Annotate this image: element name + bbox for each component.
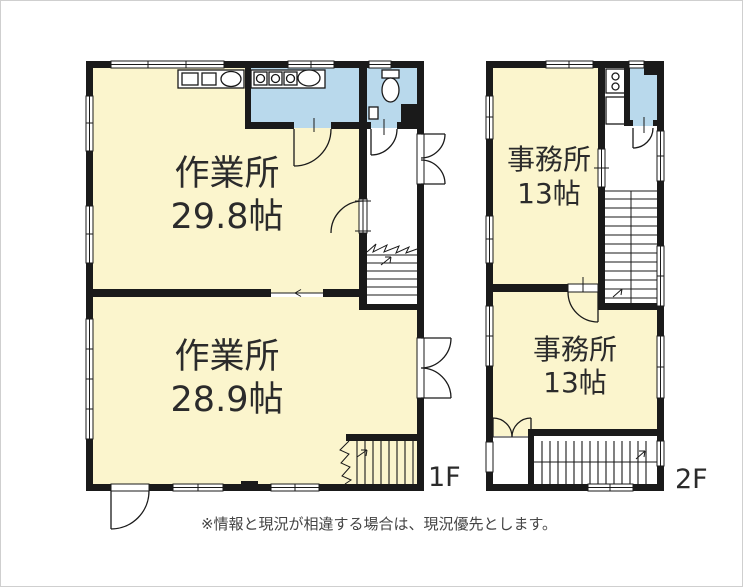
floor-label-2f: 2F — [675, 464, 708, 495]
room-label-name: 事務所 — [507, 143, 591, 176]
window — [288, 61, 334, 68]
kitchenette-2f — [606, 68, 630, 126]
window — [173, 484, 223, 491]
disclaimer-note: ※情報と現況が相違する場合は、現況優先とします。 — [201, 515, 557, 533]
window — [657, 336, 664, 398]
window — [86, 319, 93, 379]
window — [657, 131, 664, 181]
floor-plan-canvas: 作業所 29.8帖 作業所 28.9帖 1F — [1, 1, 743, 587]
room-label-size: 29.8帖 — [171, 197, 284, 237]
office1-east-wall — [598, 68, 605, 308]
room-label-name: 作業所 — [174, 154, 279, 194]
window — [86, 206, 93, 263]
window — [588, 484, 633, 491]
sink-icon — [298, 70, 320, 86]
hallway-wall-1f — [359, 68, 367, 309]
room-label-name: 作業所 — [174, 337, 279, 377]
landing-exit-door — [486, 442, 493, 472]
room-label-size: 13帖 — [517, 177, 581, 210]
window — [657, 441, 664, 466]
stove-icon — [254, 72, 297, 85]
building-1f: 作業所 29.8帖 作業所 28.9帖 1F — [86, 61, 461, 529]
wall-pillar — [241, 481, 258, 491]
stove-icon — [606, 69, 625, 93]
floor-plan-image: 作業所 29.8帖 作業所 28.9帖 1F — [0, 0, 743, 587]
window — [369, 61, 391, 68]
washbasin-icon — [178, 70, 244, 88]
stairs-2f-upper — [598, 191, 664, 310]
window — [546, 61, 593, 68]
window — [86, 96, 93, 151]
building-2f: 事務所 13帖 事務所 13帖 2F — [486, 61, 708, 495]
window — [111, 61, 224, 68]
window — [486, 96, 493, 139]
room-label-size: 28.9帖 — [171, 380, 284, 420]
room-label-name: 事務所 — [533, 333, 617, 366]
window — [629, 61, 644, 68]
window — [486, 216, 493, 263]
floor-label-1f: 1F — [428, 462, 461, 493]
window — [657, 246, 664, 306]
entry-door-1f — [111, 484, 149, 529]
double-door-1f-upper — [417, 134, 445, 184]
tp-holder-icon — [369, 107, 378, 119]
double-door-1f-lower — [417, 338, 451, 398]
window — [271, 484, 319, 491]
window — [486, 306, 493, 366]
room-office-1 — [493, 68, 598, 284]
room-label-size: 13帖 — [543, 366, 607, 399]
window — [86, 379, 93, 439]
counter-sink-icon — [606, 97, 625, 124]
stairs-1f-upper — [359, 244, 417, 310]
toilet-icon — [382, 70, 399, 102]
